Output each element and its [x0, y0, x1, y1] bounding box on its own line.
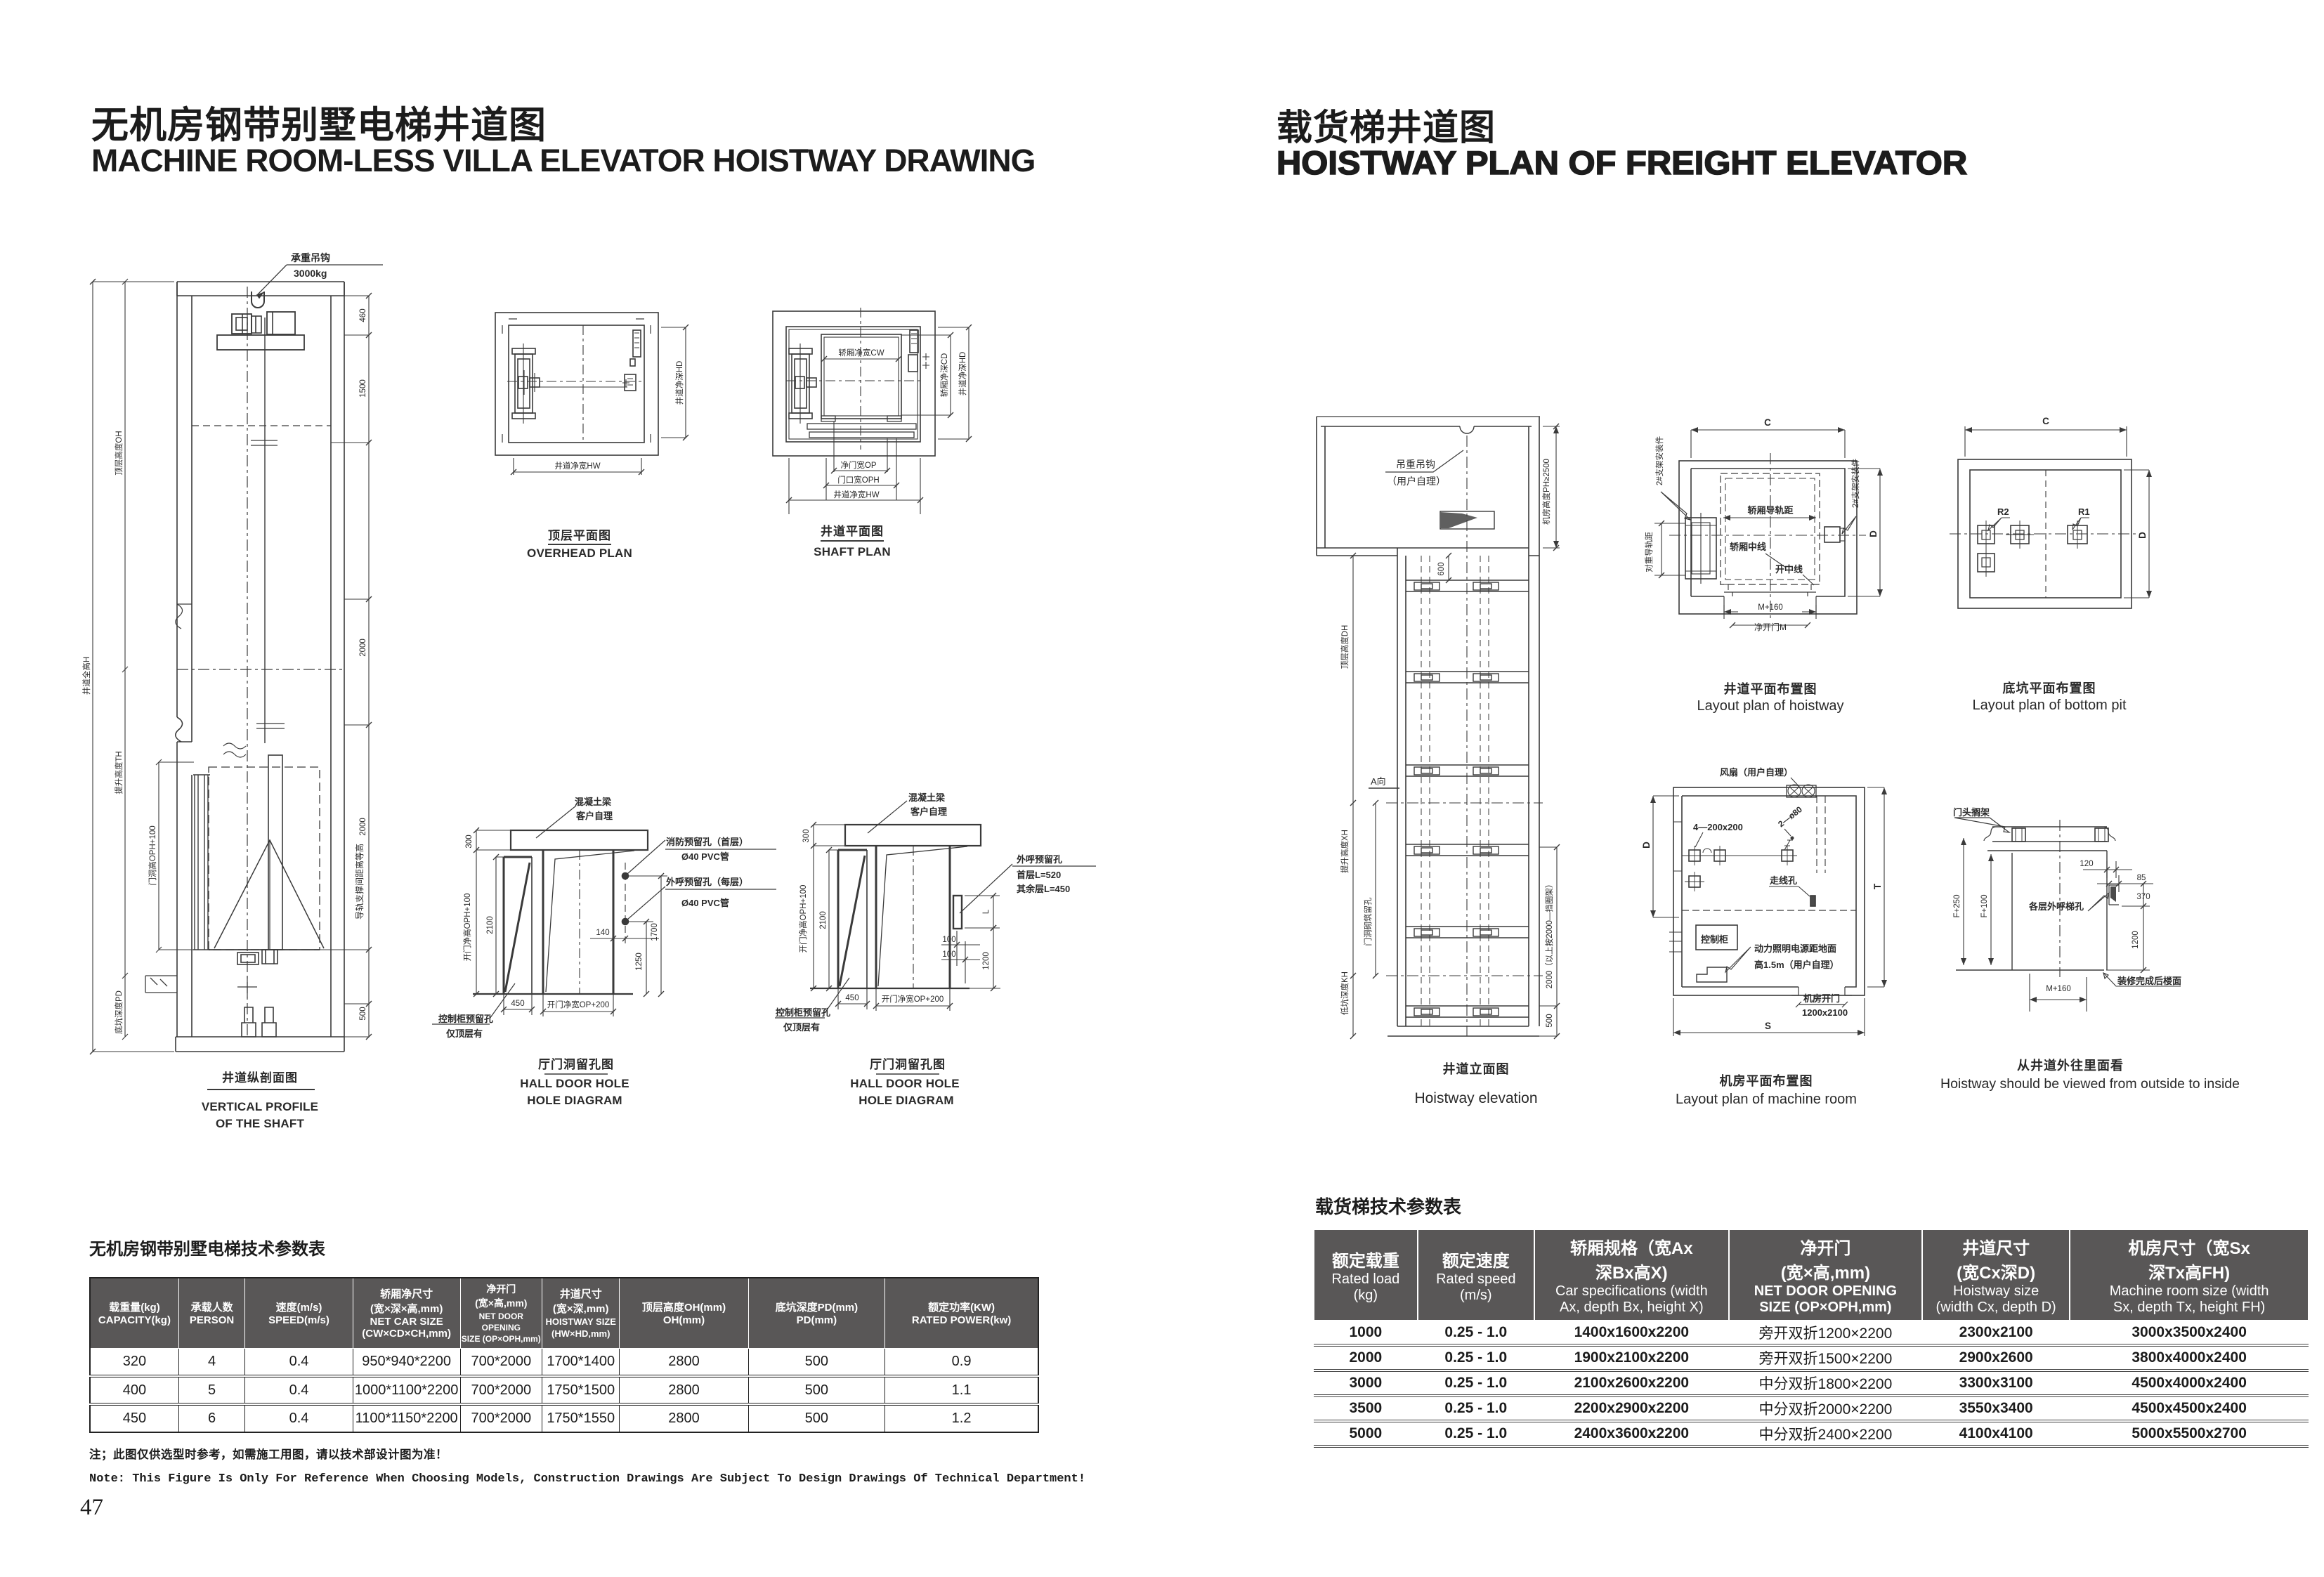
svg-text:对重导轨距: 对重导轨距 [1644, 532, 1654, 572]
svg-text:R2: R2 [1997, 506, 2009, 517]
svg-text:Hoistway should be viewed from: Hoistway should be viewed from outside t… [1940, 1076, 2240, 1092]
svg-text:T: T [1872, 883, 1883, 889]
svg-text:净门宽OP: 净门宽OP [840, 460, 876, 470]
svg-text:外呼预留孔（每层）: 外呼预留孔（每层） [665, 877, 748, 887]
svg-text:厅门洞留孔图: 厅门洞留孔图 [538, 1057, 614, 1071]
svg-text:Layout plan of hoistway: Layout plan of hoistway [1697, 698, 1843, 714]
svg-text:走线孔: 走线孔 [1770, 875, 1797, 886]
svg-text:L: L [982, 909, 991, 914]
svg-text:4—200x200: 4—200x200 [1693, 822, 1743, 832]
svg-text:1500: 1500 [359, 379, 367, 398]
svg-text:门口宽OPH: 门口宽OPH [837, 475, 879, 485]
svg-text:各层外呼梯孔: 各层外呼梯孔 [2028, 901, 2084, 912]
svg-text:客户自理: 客户自理 [576, 811, 613, 821]
svg-text:D: D [1641, 842, 1652, 849]
svg-text:低坑深度KH: 低坑深度KH [1340, 971, 1350, 1015]
svg-text:开门净高OPH+100: 开门净高OPH+100 [798, 885, 808, 953]
svg-text:500: 500 [1546, 1014, 1554, 1027]
svg-text:轿厢导轨距: 轿厢导轨距 [1747, 505, 1793, 516]
svg-text:OF THE SHAFT: OF THE SHAFT [216, 1117, 305, 1130]
svg-text:OVERHEAD PLAN: OVERHEAD PLAN [527, 547, 632, 560]
svg-text:2000: 2000 [359, 818, 367, 836]
svg-text:F+250: F+250 [1953, 895, 1961, 918]
svg-text:Ø40 PVC管: Ø40 PVC管 [681, 851, 729, 862]
svg-text:承重吊钩: 承重吊钩 [291, 252, 330, 263]
svg-text:Layout plan of machine room: Layout plan of machine room [1676, 1092, 1857, 1107]
svg-text:HALL DOOR HOLE: HALL DOOR HOLE [520, 1077, 629, 1090]
svg-text:VERTICAL PROFILE: VERTICAL PROFILE [202, 1100, 318, 1113]
svg-text:提升高度XH: 提升高度XH [1340, 830, 1350, 873]
svg-text:机房开门: 机房开门 [1803, 993, 1840, 1004]
svg-text:井道纵剖面图: 井道纵剖面图 [222, 1071, 298, 1085]
svg-text:井道净深HD: 井道净深HD [674, 361, 684, 405]
svg-text:Layout plan of bottom pit: Layout plan of bottom pit [1972, 698, 2126, 713]
svg-text:140: 140 [596, 929, 609, 937]
svg-text:井道净宽HW: 井道净宽HW [833, 490, 879, 499]
svg-text:1250: 1250 [635, 953, 644, 971]
svg-text:井道全高H: 井道全高H [81, 657, 91, 695]
svg-text:HOLE DIAGRAM: HOLE DIAGRAM [527, 1094, 622, 1107]
svg-text:井道立面图: 井道立面图 [1443, 1061, 1510, 1076]
svg-text:厅门洞留孔图: 厅门洞留孔图 [870, 1057, 946, 1071]
svg-text:开门净高OPH+100: 开门净高OPH+100 [462, 894, 472, 962]
svg-text:600: 600 [1437, 562, 1446, 575]
svg-text:500: 500 [359, 1007, 367, 1020]
svg-text:2000（以上按2000—挡圈架）: 2000（以上按2000—挡圈架） [1544, 880, 1554, 989]
svg-text:2100: 2100 [486, 916, 495, 934]
svg-text:100: 100 [942, 936, 955, 944]
svg-text:HALL DOOR HOLE: HALL DOOR HOLE [850, 1077, 960, 1090]
svg-text:外呼预留孔: 外呼预留孔 [1016, 854, 1062, 865]
svg-text:门头搁架: 门头搁架 [1953, 807, 1990, 818]
svg-text:1700: 1700 [651, 923, 659, 941]
svg-text:机房高度PH≥2500: 机房高度PH≥2500 [1541, 459, 1551, 525]
svg-text:首层L=520: 首层L=520 [1017, 870, 1061, 880]
svg-text:HOLE DIAGRAM: HOLE DIAGRAM [859, 1094, 954, 1107]
svg-text:门洞砌筑留孔: 门洞砌筑留孔 [1363, 897, 1373, 945]
svg-text:装修完成后楼面: 装修完成后楼面 [2117, 976, 2181, 986]
svg-text:仅顶层有: 仅顶层有 [445, 1028, 483, 1039]
svg-text:井道净宽HW: 井道净宽HW [554, 461, 600, 471]
svg-text:混凝土梁: 混凝土梁 [908, 792, 946, 803]
svg-text:2100: 2100 [819, 911, 828, 929]
svg-text:导轨支撑间距离等高: 导轨支撑间距离等高 [354, 844, 365, 920]
svg-text:底坑深度PD: 底坑深度PD [114, 990, 124, 1034]
svg-text:控制柜: 控制柜 [1701, 934, 1728, 945]
svg-text:85: 85 [2137, 874, 2146, 882]
svg-text:M+160: M+160 [1758, 603, 1782, 612]
svg-text:门洞高OPH+100: 门洞高OPH+100 [148, 825, 157, 885]
svg-text:D: D [1868, 530, 1879, 537]
svg-text:（用户自理）: （用户自理） [1387, 476, 1446, 487]
svg-text:D: D [2137, 532, 2148, 539]
svg-text:从井道外往里面看: 从井道外往里面看 [2017, 1058, 2124, 1073]
svg-text:R1: R1 [2078, 506, 2090, 517]
svg-text:吊重吊钩: 吊重吊钩 [1396, 459, 1435, 470]
svg-text:A向: A向 [1371, 776, 1386, 787]
svg-text:100: 100 [942, 950, 955, 959]
svg-text:机房平面布置图: 机房平面布置图 [1720, 1073, 1813, 1088]
svg-text:轿厢净深CD: 轿厢净深CD [939, 353, 949, 398]
svg-text:Hoistway elevation: Hoistway elevation [1414, 1090, 1537, 1106]
svg-text:井道平面图: 井道平面图 [821, 524, 884, 538]
svg-text:客户自理: 客户自理 [910, 806, 947, 817]
svg-text:动力照明电源距地面: 动力照明电源距地面 [1754, 943, 1836, 954]
svg-text:顶层高度OH: 顶层高度OH [114, 431, 124, 475]
svg-text:2—ø80: 2—ø80 [1776, 804, 1804, 829]
svg-text:顶层高度DH: 顶层高度DH [1340, 625, 1350, 669]
svg-text:1200x2100: 1200x2100 [1802, 1007, 1848, 1018]
svg-text:C: C [1764, 417, 1771, 428]
svg-text:底坑平面布置图: 底坑平面布置图 [2003, 681, 2096, 695]
svg-text:300: 300 [465, 835, 474, 848]
svg-text:2#支架安装件: 2#支架安装件 [1850, 459, 1860, 508]
svg-text:井道净深HD: 井道净深HD [958, 352, 967, 396]
svg-text:提升高度TH: 提升高度TH [114, 751, 124, 794]
svg-text:Ø40 PVC管: Ø40 PVC管 [681, 898, 729, 908]
svg-text:S: S [1765, 1021, 1771, 1031]
svg-text:300: 300 [802, 829, 811, 842]
svg-text:F+100: F+100 [1980, 895, 1989, 918]
svg-text:其余层L=450: 其余层L=450 [1017, 884, 1070, 894]
svg-text:净开门M: 净开门M [1754, 622, 1787, 632]
svg-text:混凝土梁: 混凝土梁 [575, 797, 612, 807]
svg-text:开中线: 开中线 [1775, 564, 1803, 575]
svg-text:顶层平面图: 顶层平面图 [548, 529, 611, 542]
svg-text:井道平面布置图: 井道平面布置图 [1724, 681, 1817, 696]
svg-text:消防预留孔（首层）: 消防预留孔（首层） [666, 837, 748, 847]
svg-text:1200: 1200 [2132, 931, 2140, 949]
svg-text:2#支架安装件: 2#支架安装件 [1654, 436, 1664, 485]
svg-text:C: C [2042, 416, 2049, 426]
svg-text:1200: 1200 [982, 952, 991, 970]
svg-text:450: 450 [511, 1000, 524, 1008]
svg-text:开门净宽OP+200: 开门净宽OP+200 [547, 1000, 610, 1009]
svg-text:370: 370 [2136, 893, 2150, 901]
svg-text:2000: 2000 [359, 639, 367, 657]
svg-text:3000kg: 3000kg [294, 268, 327, 279]
svg-text:450: 450 [845, 994, 859, 1002]
svg-text:高1.5m（用户自理）: 高1.5m（用户自理） [1754, 960, 1839, 970]
svg-text:仅顶层有: 仅顶层有 [783, 1022, 820, 1033]
svg-text:460: 460 [359, 308, 367, 322]
svg-text:控制柜预留孔: 控制柜预留孔 [438, 1014, 493, 1024]
svg-text:控制柜预留孔: 控制柜预留孔 [776, 1007, 830, 1018]
svg-text:120: 120 [2080, 860, 2093, 868]
svg-text:轿厢中线: 轿厢中线 [1730, 542, 1766, 552]
svg-text:M+160: M+160 [2046, 985, 2070, 993]
svg-text:风扇（用户自理）: 风扇（用户自理） [1720, 767, 1793, 778]
svg-text:开门净宽OP+200: 开门净宽OP+200 [882, 994, 944, 1004]
svg-text:轿厢净宽CW: 轿厢净宽CW [838, 348, 884, 358]
svg-text:SHAFT PLAN: SHAFT PLAN [814, 545, 891, 558]
